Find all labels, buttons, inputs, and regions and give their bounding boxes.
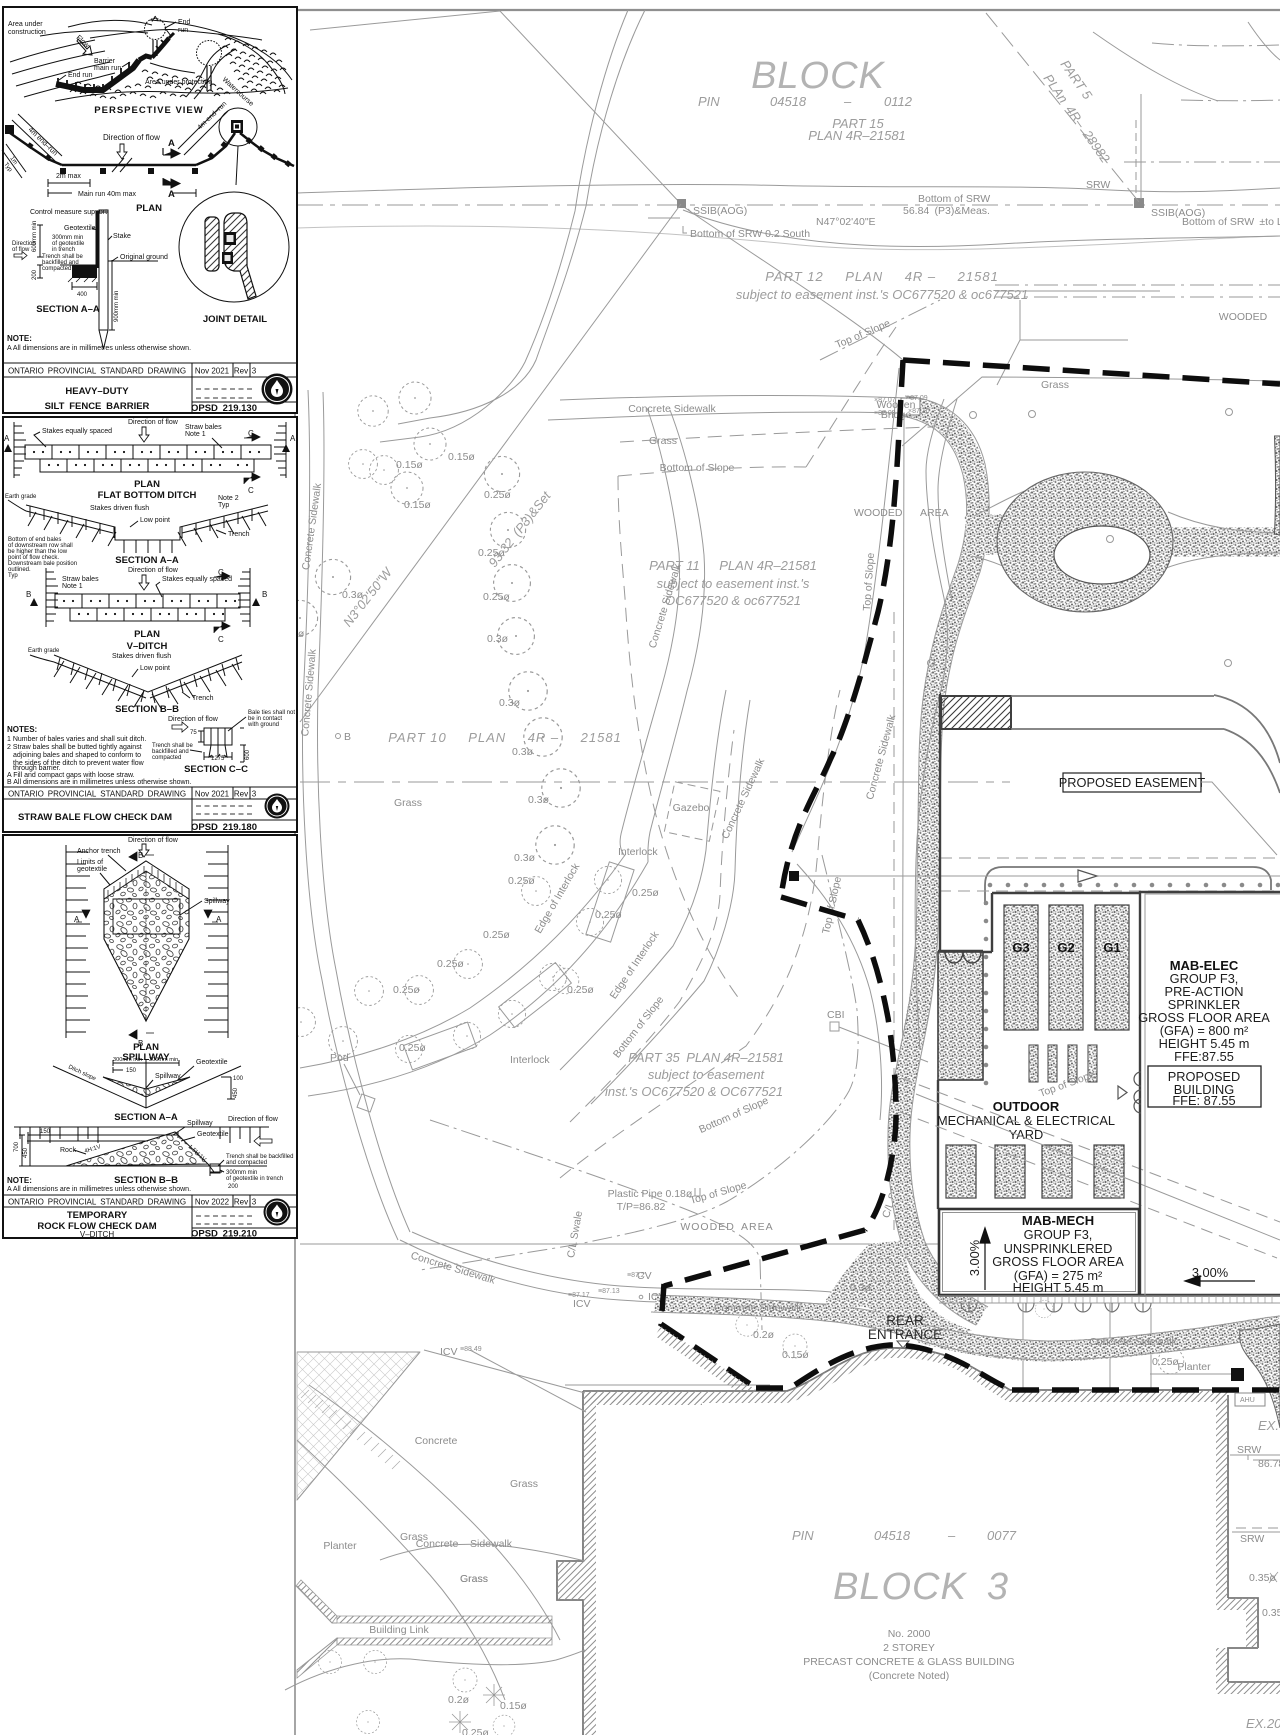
- svg-text:Interlock: Interlock: [510, 1054, 550, 1066]
- svg-text:0.3ø: 0.3ø: [487, 633, 509, 645]
- svg-text:REAR: REAR: [886, 1313, 924, 1328]
- svg-text:A: A: [290, 434, 296, 443]
- svg-text:0.25ø: 0.25ø: [484, 489, 511, 501]
- svg-text:–: –: [843, 94, 852, 109]
- svg-text:FFE: 87.55: FFE: 87.55: [1172, 1093, 1235, 1108]
- svg-text:PLAN: PLAN: [136, 203, 162, 214]
- svg-text:Planter: Planter: [323, 1540, 357, 1552]
- svg-text:TEMPORARY: TEMPORARY: [67, 1210, 128, 1221]
- svg-text:SRW: SRW: [1237, 1444, 1261, 1456]
- svg-text:compacted: compacted: [152, 755, 181, 761]
- svg-text:GROSS FLOOR AREA: GROSS FLOOR AREA: [992, 1254, 1124, 1269]
- svg-text:B: B: [344, 731, 351, 743]
- svg-text:PRECAST CONCRETE & GLASS BUILD: PRECAST CONCRETE & GLASS BUILDING: [803, 1656, 1015, 1668]
- svg-text:0.25ø: 0.25ø: [462, 1727, 489, 1735]
- svg-text:Typ: Typ: [218, 502, 229, 509]
- svg-text:geotextile: geotextile: [77, 866, 107, 873]
- svg-text:Barrier: Barrier: [94, 58, 116, 65]
- svg-text:A: A: [168, 189, 175, 200]
- svg-text:Low point: Low point: [140, 665, 170, 672]
- svg-text:OPSD 219.180: OPSD 219.180: [191, 822, 257, 833]
- svg-text:HEAVY–DUTY: HEAVY–DUTY: [65, 386, 129, 397]
- svg-text:OPSD 219.210: OPSD 219.210: [191, 1229, 257, 1240]
- svg-text:450: 450: [23, 1147, 29, 1158]
- svg-text:300mm min: 300mm min: [113, 1057, 142, 1063]
- svg-text:WOODED: WOODED: [1219, 311, 1268, 323]
- svg-text:A: A: [74, 915, 80, 924]
- svg-text:300mm min: 300mm min: [149, 1057, 178, 1063]
- svg-text:3: 3: [252, 367, 257, 376]
- svg-text:SECTION B–B: SECTION B–B: [115, 704, 179, 715]
- svg-text:Bottom of SRW 0.2 South: Bottom of SRW 0.2 South: [690, 228, 810, 240]
- svg-text:and compacted: and compacted: [226, 1160, 267, 1166]
- svg-text:SECTION B–B: SECTION B–B: [114, 1175, 178, 1186]
- svg-text:T/P=86.82: T/P=86.82: [617, 1201, 666, 1213]
- svg-text:0.25ø: 0.25ø: [399, 1042, 426, 1054]
- svg-text:Plastic Pipe 0.18ø: Plastic Pipe 0.18ø: [608, 1188, 693, 1200]
- svg-text:(Concrete Noted): (Concrete Noted): [869, 1670, 950, 1682]
- svg-text:SECTION A–A: SECTION A–A: [114, 1112, 178, 1123]
- svg-text:1 Number of bales varies and s: 1 Number of bales varies and shall suit …: [7, 736, 146, 743]
- svg-text:End run: End run: [68, 72, 93, 79]
- svg-text:EX.: EX.: [1258, 1418, 1279, 1433]
- svg-text:75: 75: [190, 730, 197, 736]
- svg-text:run: run: [178, 27, 188, 34]
- svg-text:compacted: compacted: [42, 266, 71, 272]
- svg-text:200: 200: [32, 269, 38, 280]
- svg-text:Concrete Sidewalk: Concrete Sidewalk: [628, 403, 716, 415]
- svg-text:Interlock: Interlock: [618, 846, 658, 858]
- svg-text:Straw bales: Straw bales: [185, 424, 222, 431]
- svg-text:04518: 04518: [874, 1528, 911, 1543]
- svg-text:OC677520 & oc677521: OC677520 & oc677521: [665, 593, 801, 608]
- svg-text:×87.10: ×87.10: [908, 408, 930, 415]
- svg-text:V–DITCH: V–DITCH: [127, 641, 168, 652]
- svg-text:B: B: [262, 590, 267, 599]
- svg-text:A Fill and compact gaps with l: A Fill and compact gaps with loose straw…: [7, 772, 135, 779]
- svg-text:0.25ø: 0.25ø: [508, 875, 535, 887]
- svg-text:Stakes equally spaced: Stakes equally spaced: [42, 428, 112, 435]
- svg-text:Rev: Rev: [234, 1198, 248, 1207]
- svg-text:3: 3: [252, 1198, 257, 1207]
- svg-text:with ground: with ground: [247, 722, 279, 728]
- svg-text:900mm min: 900mm min: [114, 291, 120, 322]
- svg-text:Bottom of Slope: Bottom of Slope: [660, 462, 735, 474]
- svg-text:×87.08: ×87.08: [874, 410, 896, 417]
- svg-text:Earth grade: Earth grade: [28, 648, 60, 654]
- svg-text:2 STOREY: 2 STOREY: [883, 1642, 935, 1654]
- svg-text:0.3ø: 0.3ø: [850, 1282, 872, 1294]
- svg-text:2 Straw bales shall be butted: 2 Straw bales shall be butted tightly ag…: [7, 744, 142, 751]
- svg-text:WOODED AREA: WOODED AREA: [680, 1221, 773, 1233]
- svg-text:150: 150: [126, 1068, 137, 1074]
- svg-text:MAB-MECH: MAB-MECH: [1022, 1213, 1094, 1228]
- svg-text:HEIGHT 5.45 m: HEIGHT 5.45 m: [1013, 1280, 1104, 1295]
- svg-text:ONTARIO PROVINCIAL STANDARD DR: ONTARIO PROVINCIAL STANDARD DRAWING: [8, 790, 186, 799]
- svg-text:0077: 0077: [987, 1528, 1017, 1543]
- svg-text:BLOCK 3: BLOCK 3: [833, 1566, 1009, 1608]
- svg-text:Stakes driven flush: Stakes driven flush: [90, 505, 149, 512]
- svg-text:Direction of flow: Direction of flow: [128, 419, 179, 426]
- svg-text:0.25ø: 0.25ø: [567, 984, 594, 996]
- svg-text:Control measure support: Control measure support: [30, 209, 107, 216]
- svg-text:G3: G3: [1012, 940, 1029, 955]
- svg-text:NOTE:: NOTE:: [7, 1176, 32, 1185]
- svg-text:of flow: of flow: [12, 247, 30, 253]
- svg-text:ONTARIO PROVINCIAL STANDARD DR: ONTARIO PROVINCIAL STANDARD DRAWING: [8, 1198, 186, 1207]
- svg-text:construction: construction: [8, 29, 46, 36]
- svg-text:ENTRANCE: ENTRANCE: [868, 1327, 942, 1342]
- svg-text:End: End: [178, 19, 191, 26]
- svg-text:Note 2: Note 2: [218, 495, 239, 502]
- svg-text:Note 1: Note 1: [62, 583, 83, 590]
- svg-text:150: 150: [40, 1129, 51, 1135]
- svg-text:Nov 2022: Nov 2022: [195, 1198, 230, 1207]
- svg-text:Grass: Grass: [510, 1478, 538, 1490]
- svg-text:0.3ø: 0.3ø: [499, 697, 521, 709]
- svg-text:PLAN 4R–21581: PLAN 4R–21581: [808, 128, 906, 143]
- svg-text:subject to easement: subject to easement: [648, 1067, 766, 1082]
- svg-text:Concrete: Concrete: [416, 1538, 459, 1550]
- svg-text:Note 1: Note 1: [185, 431, 206, 438]
- svg-text:0.25ø: 0.25ø: [478, 547, 505, 559]
- svg-text:NOTES:: NOTES:: [7, 725, 37, 734]
- svg-text:600: 600: [245, 749, 251, 760]
- svg-text:Limits of: Limits of: [77, 859, 103, 866]
- svg-text:Earth grade: Earth grade: [5, 494, 37, 500]
- svg-text:A All dimensions are in millim: A All dimensions are in millimetres unle…: [7, 345, 191, 352]
- svg-text:Sidewalk: Sidewalk: [470, 1538, 513, 1550]
- svg-text:0.25ø: 0.25ø: [483, 929, 510, 941]
- svg-text:≡87.17: ≡87.17: [568, 1292, 590, 1299]
- svg-text:Grass: Grass: [460, 1573, 488, 1585]
- svg-text:Pod: Pod: [330, 1052, 349, 1064]
- svg-text:Direction of flow: Direction of flow: [228, 1116, 279, 1123]
- svg-text:0.15ø: 0.15ø: [404, 499, 431, 511]
- svg-text:0.15ø: 0.15ø: [448, 451, 475, 463]
- svg-text:Grass: Grass: [394, 797, 422, 809]
- svg-text:0.25ø: 0.25ø: [595, 909, 622, 921]
- svg-text:AREA: AREA: [920, 507, 949, 519]
- svg-text:200: 200: [228, 1184, 239, 1190]
- svg-text:Spillway: Spillway: [155, 1073, 181, 1080]
- svg-text:Main run 40m max: Main run 40m max: [78, 191, 136, 198]
- svg-text:YARD: YARD: [1009, 1127, 1044, 1142]
- svg-text:Direction of flow: Direction of flow: [103, 133, 160, 142]
- svg-text:Trench: Trench: [228, 531, 250, 538]
- svg-text:Low point: Low point: [140, 517, 170, 524]
- svg-text:A: A: [4, 434, 10, 443]
- svg-text:SECTION C–C: SECTION C–C: [184, 764, 248, 775]
- svg-text:Geotextile: Geotextile: [64, 225, 96, 232]
- svg-text:SILT FENCE BARRIER: SILT FENCE BARRIER: [45, 401, 150, 412]
- svg-text:CV: CV: [637, 1270, 652, 1282]
- svg-text:PERSPECTIVE VIEW: PERSPECTIVE VIEW: [94, 105, 203, 116]
- svg-text:subject to easement inst.'s OC: subject to easement inst.'s OC677520 & o…: [736, 287, 1028, 302]
- svg-text:0.25ø: 0.25ø: [1152, 1356, 1179, 1368]
- svg-text:A All dimensions are in millim: A All dimensions are in millimetres unle…: [7, 1186, 191, 1193]
- svg-text:adjoining bales and shaped to: adjoining bales and shaped to conform to: [13, 752, 141, 759]
- svg-text:OPSD 219.130: OPSD 219.130: [191, 403, 257, 414]
- svg-text:main run: main run: [94, 65, 121, 72]
- svg-text:Stake: Stake: [113, 233, 131, 240]
- svg-text:Planter: Planter: [1177, 1361, 1211, 1373]
- svg-text:PIN: PIN: [698, 94, 720, 109]
- svg-text:NOTE:: NOTE:: [7, 334, 32, 343]
- svg-text:FFE:87.55: FFE:87.55: [1174, 1049, 1234, 1064]
- svg-text:inst.'s OC677520 & OC677521: inst.'s OC677520 & OC677521: [605, 1084, 783, 1099]
- svg-text:Trench: Trench: [192, 695, 214, 702]
- svg-text:in trench: in trench: [52, 247, 75, 253]
- svg-text:PLAN: PLAN: [134, 479, 160, 490]
- svg-text:Spillway: Spillway: [204, 898, 230, 905]
- svg-text:PLAN: PLAN: [134, 629, 160, 640]
- svg-text:ICV: ICV: [573, 1298, 591, 1310]
- svg-text:A: A: [168, 138, 175, 149]
- svg-text:C: C: [218, 635, 224, 644]
- svg-text:1275: 1275: [211, 756, 225, 762]
- svg-text:B: B: [26, 590, 31, 599]
- svg-text:3: 3: [252, 790, 257, 799]
- svg-text:Geotextile: Geotextile: [196, 1059, 228, 1066]
- svg-text:0.15ø: 0.15ø: [396, 459, 423, 471]
- svg-text:600mm min: 600mm min: [32, 221, 38, 252]
- svg-text:0.35ø: 0.35ø: [1249, 1572, 1276, 1584]
- svg-text:0.3ø: 0.3ø: [342, 589, 364, 601]
- svg-text:0.2ø: 0.2ø: [448, 1694, 470, 1706]
- svg-text:Direction of flow: Direction of flow: [168, 716, 219, 723]
- svg-text:Anchor trench: Anchor trench: [77, 848, 121, 855]
- svg-text:EX.20: EX.20: [1246, 1716, 1280, 1731]
- svg-text:Rev: Rev: [234, 367, 248, 376]
- svg-text:450: 450: [233, 1087, 239, 1098]
- svg-text:ONTARIO PROVINCIAL STANDARD DR: ONTARIO PROVINCIAL STANDARD DRAWING: [8, 367, 186, 376]
- svg-text:N47°02'40"E: N47°02'40"E: [816, 216, 876, 228]
- svg-text:400: 400: [77, 292, 88, 298]
- svg-text:PROPOSED EASEMENT: PROPOSED EASEMENT: [1059, 775, 1206, 790]
- svg-text:0.15ø: 0.15ø: [782, 1349, 809, 1361]
- svg-text:0.25ø: 0.25ø: [393, 984, 420, 996]
- svg-text:Direction of flow: Direction of flow: [128, 837, 179, 844]
- svg-text:G2: G2: [1057, 940, 1074, 955]
- svg-text:0.25ø: 0.25ø: [632, 887, 659, 899]
- svg-text:Typ: Typ: [8, 573, 18, 579]
- svg-text:CBI: CBI: [827, 1009, 845, 1021]
- svg-text:Grass: Grass: [649, 435, 677, 447]
- svg-text:B: B: [138, 851, 143, 860]
- svg-text:04518: 04518: [770, 94, 807, 109]
- svg-text:SSIB(AOG): SSIB(AOG): [693, 205, 747, 217]
- svg-text:56.84 (P3)&Meas.: 56.84 (P3)&Meas.: [903, 205, 990, 217]
- svg-text:AHU: AHU: [1240, 1397, 1255, 1404]
- svg-text:Bottom of SRW ±to Line: Bottom of SRW ±to Line: [1182, 216, 1280, 228]
- svg-text:GROUP F3,: GROUP F3,: [1024, 1227, 1093, 1242]
- svg-text:B All dimensions are in millim: B All dimensions are in millimetres unle…: [7, 779, 191, 786]
- svg-text:STRAW BALE FLOW CHECK DAM: STRAW BALE FLOW CHECK DAM: [18, 812, 172, 823]
- svg-text:Nov 2021: Nov 2021: [195, 367, 230, 376]
- svg-text:PIN: PIN: [792, 1528, 814, 1543]
- svg-text:PART 10 PLAN 4R – 21581: PART 10 PLAN 4R – 21581: [388, 730, 622, 745]
- svg-text:0.15ø: 0.15ø: [500, 1700, 527, 1712]
- svg-text:SRW: SRW: [1086, 179, 1110, 191]
- svg-text:PART 35 PLAN 4R–21581: PART 35 PLAN 4R–21581: [628, 1050, 784, 1065]
- svg-text:Concrete: Concrete: [415, 1435, 458, 1447]
- svg-text:of geotextile in trench: of geotextile in trench: [226, 1176, 283, 1182]
- svg-text:Original ground: Original ground: [120, 254, 168, 261]
- svg-text:0.2ø: 0.2ø: [753, 1329, 775, 1341]
- svg-text:Concrete Sidewalk: Concrete Sidewalk: [1089, 1336, 1177, 1348]
- svg-text:C: C: [248, 486, 254, 495]
- svg-text:JOINT DETAIL: JOINT DETAIL: [203, 314, 267, 325]
- svg-text:Area under protection: Area under protection: [145, 79, 212, 86]
- svg-text:BLOCK: BLOCK: [751, 55, 885, 97]
- svg-text:700: 700: [14, 1141, 20, 1152]
- svg-text:through barrier.: through barrier.: [13, 765, 61, 772]
- svg-text:0.3ø: 0.3ø: [512, 746, 534, 758]
- svg-text:FLAT BOTTOM DITCH: FLAT BOTTOM DITCH: [98, 490, 197, 501]
- svg-text:Rev: Rev: [234, 790, 248, 799]
- svg-text:G1: G1: [1103, 940, 1120, 955]
- svg-text:Gazebo: Gazebo: [673, 802, 710, 814]
- svg-text:0112: 0112: [884, 94, 913, 109]
- svg-text:PART 12 PLAN 4R – 21581: PART 12 PLAN 4R – 21581: [765, 269, 999, 284]
- svg-text:SRW: SRW: [1240, 1533, 1264, 1545]
- svg-text:WOODED: WOODED: [854, 507, 903, 519]
- svg-text:SECTION A–A: SECTION A–A: [115, 555, 179, 566]
- svg-text:Concrete Sidewalk: Concrete Sidewalk: [714, 1302, 802, 1314]
- svg-text:SECTION A–A: SECTION A–A: [36, 304, 100, 315]
- svg-text:Building Link: Building Link: [369, 1624, 429, 1636]
- svg-text:Geotextile: Geotextile: [197, 1131, 229, 1138]
- svg-text:0.25ø: 0.25ø: [483, 591, 510, 603]
- svg-text:Bottom of SRW: Bottom of SRW: [918, 193, 990, 205]
- svg-text:OUTDOOR: OUTDOOR: [993, 1099, 1060, 1114]
- svg-text:Straw bales: Straw bales: [62, 576, 99, 583]
- svg-text:V–DITCH: V–DITCH: [80, 1230, 114, 1239]
- svg-text:3.00%: 3.00%: [967, 1240, 982, 1276]
- svg-text:≡87.13: ≡87.13: [598, 1288, 620, 1295]
- svg-text:–: –: [947, 1528, 956, 1543]
- svg-text:≡88.49: ≡88.49: [460, 1346, 482, 1353]
- svg-text:Grass: Grass: [1041, 379, 1069, 391]
- svg-text:0.3ø: 0.3ø: [528, 794, 550, 806]
- svg-text:Stakes driven flush: Stakes driven flush: [112, 653, 171, 660]
- svg-text:A: A: [216, 915, 222, 924]
- svg-text:0.25ø: 0.25ø: [437, 958, 464, 970]
- svg-text:2m max: 2m max: [56, 173, 81, 180]
- svg-text:Spillway: Spillway: [187, 1120, 213, 1127]
- svg-text:Area under: Area under: [8, 21, 43, 28]
- svg-text:0.3ø: 0.3ø: [514, 852, 536, 864]
- svg-text:0.35: 0.35: [1262, 1607, 1280, 1619]
- svg-text:No. 2000: No. 2000: [888, 1628, 931, 1640]
- svg-text:Nov 2021: Nov 2021: [195, 790, 230, 799]
- svg-text:100: 100: [233, 1076, 244, 1082]
- svg-text:Direction of flow: Direction of flow: [128, 567, 179, 574]
